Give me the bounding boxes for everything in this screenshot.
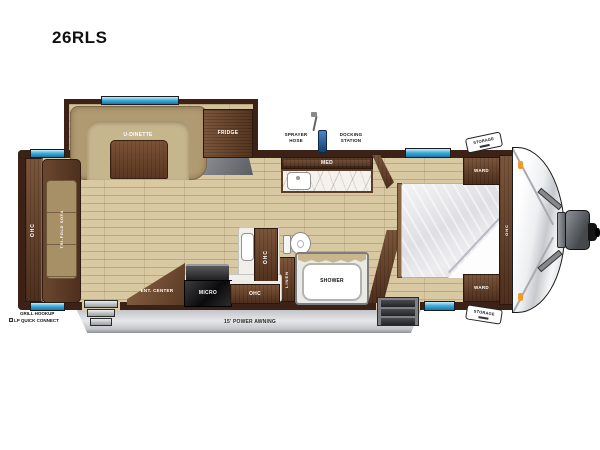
docking-line2: STATION: [329, 138, 373, 144]
kitchen-sink: [241, 233, 254, 261]
entry-steps-main-2: [87, 309, 115, 317]
bedroom-step-1: [381, 300, 415, 307]
bedroom-step-3: [381, 318, 415, 325]
grill-line1: GRILL HOOKUP: [14, 310, 84, 317]
sprayer-hose-label: SPRAYER HOSE: [275, 132, 317, 144]
vanity-sink: [287, 172, 311, 190]
fridge-label: FRIDGE: [203, 131, 253, 136]
awning-label: 15' POWER AWNING: [190, 319, 310, 326]
ohc-bed-label: OHC: [505, 224, 509, 236]
ohc-cabinet-kitchen-upper: OHC: [254, 228, 278, 286]
wardrobe-top: WARD: [463, 157, 500, 185]
ward-top-label: WARD: [474, 169, 489, 174]
cap-seam-upper: [512, 147, 554, 225]
marker-light-top: [518, 161, 523, 169]
storage-bottom-latch-icon: [478, 316, 488, 320]
window-rear-top: [30, 149, 65, 158]
grill-hookup-label: GRILL HOOKUP LP QUICK CONNECT: [14, 310, 84, 324]
vanity-faucet-icon: [296, 176, 300, 180]
window-slideout: [101, 96, 179, 105]
slideout-step-mat: [200, 157, 253, 175]
ohc-rear-label: OHC: [31, 223, 36, 237]
sprayer-line2: HOSE: [275, 138, 317, 144]
ent-center-label: ENT. CENTER: [132, 289, 182, 294]
med-label: MED: [321, 161, 333, 166]
marker-light-bottom: [518, 293, 523, 301]
docking-station-icon: [318, 130, 327, 153]
microwave-label: MICRO: [184, 291, 232, 296]
sprayer-hose-icon: [312, 116, 317, 131]
entry-steps-bedroom: [377, 297, 419, 326]
floorplan-canvas: 26RLS 15' POWER AWNING U-DINETTE FRIDGE …: [0, 0, 600, 450]
window-bedroom-bottom: [424, 301, 455, 311]
entry-steps-main-3: [90, 318, 112, 326]
ohc-cabinet-rear: OHC: [25, 158, 43, 302]
sofa-label: TRI-FOLD SOFA: [60, 210, 64, 248]
ohc-kitchen-lower-label: OHC: [230, 292, 280, 297]
bedroom-step-2: [381, 309, 415, 316]
stove: [186, 264, 229, 281]
floorplan-title: 26RLS: [52, 28, 107, 48]
ohc-kitchen-upper-label: OHC: [264, 250, 269, 264]
window-bedroom-top: [405, 148, 451, 158]
sofa-cushions: TRI-FOLD SOFA: [46, 180, 77, 279]
med-cabinet: MED: [281, 157, 373, 169]
entry-steps-main: [84, 300, 118, 308]
shower-label: SHOWER: [302, 278, 362, 285]
lp-connect-icon: [9, 318, 13, 322]
u-dinette-table: [110, 140, 168, 179]
linen-label: LINEN: [285, 271, 289, 288]
ward-bottom-label: WARD: [474, 286, 489, 291]
cap-seam-lower: [512, 237, 554, 313]
toilet-seat-icon: [297, 240, 304, 248]
grill-line2: LP QUICK CONNECT: [14, 317, 84, 324]
storage-top-latch-icon: [480, 144, 490, 148]
hitch-coupler-ball: [595, 228, 600, 237]
u-dinette-label: U-DINETTE: [87, 133, 189, 138]
sprayer-nozzle-icon: [311, 112, 317, 117]
docking-station-label: DOCKING STATION: [329, 132, 373, 144]
propane-tank-cover: [565, 210, 590, 250]
wardrobe-bottom: WARD: [463, 274, 500, 302]
